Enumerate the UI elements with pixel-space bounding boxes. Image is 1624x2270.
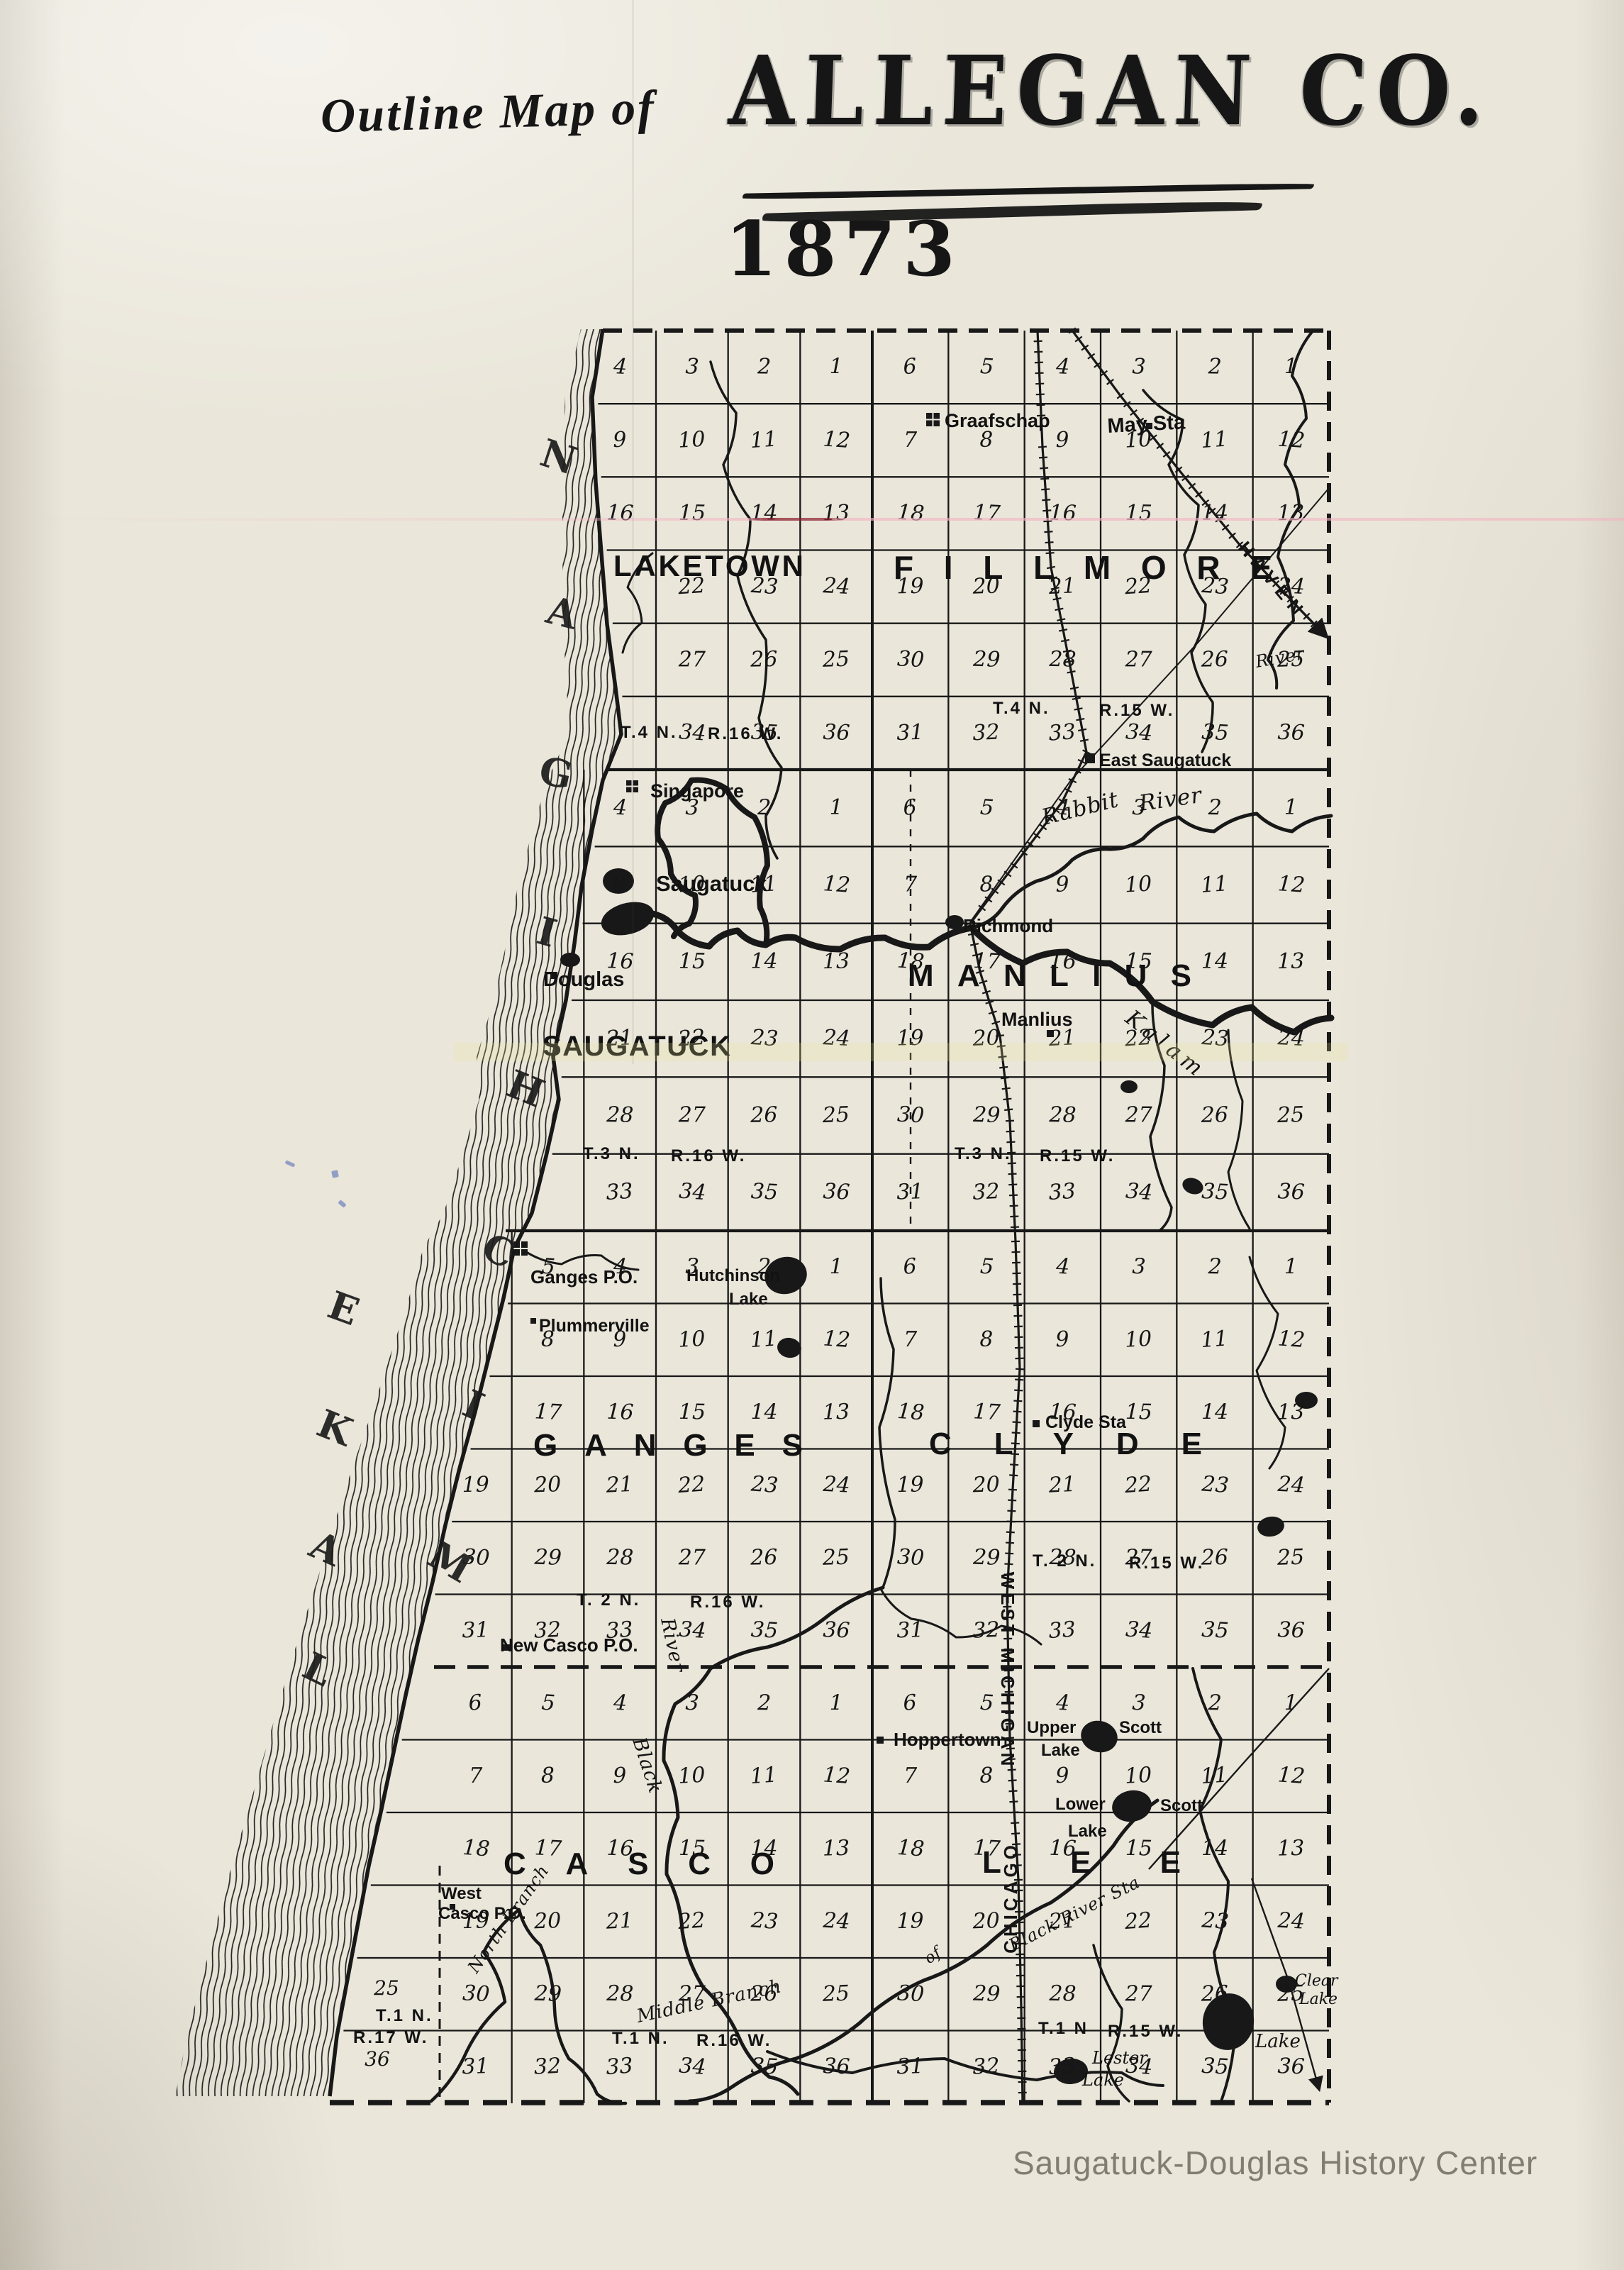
- chicago-west-michigan-railroad-tie: [1008, 1174, 1017, 1175]
- township-range-label: R.16 W.: [696, 2031, 772, 2050]
- section-number: 29: [533, 1545, 562, 1571]
- section-number: 6: [902, 1690, 917, 1716]
- place-label-lester-lake-2: Lake: [1081, 2070, 1124, 2090]
- section-number: 10: [677, 1763, 706, 1789]
- section-number: 17: [973, 1399, 1002, 1425]
- section-number: 11: [750, 1762, 779, 1789]
- section-number: 10: [1124, 1327, 1152, 1353]
- section-number: 26: [1200, 647, 1228, 672]
- section-number: 6: [902, 1254, 917, 1280]
- rabbit-river: [973, 814, 1331, 927]
- section-number: 33: [1047, 719, 1077, 746]
- chicago-west-michigan-railroad-tie: [1001, 1078, 1009, 1078]
- section-number: 35: [750, 2054, 779, 2080]
- section-number: 13: [823, 1400, 850, 1425]
- section-number: 7: [469, 1764, 483, 1788]
- watermark-credit: Saugatuck-Douglas History Center: [1013, 2144, 1537, 2182]
- section-number: 4: [612, 795, 628, 821]
- section-number: 34: [1125, 719, 1154, 746]
- chicago-west-michigan-railroad-tie: [1009, 1791, 1018, 1792]
- section-number: 11: [1200, 1326, 1229, 1353]
- section-number: 28: [606, 1545, 634, 1571]
- section-number: 31: [896, 720, 924, 746]
- section-number: 35: [750, 1617, 779, 1644]
- chicago-west-michigan-railroad-tie: [1045, 542, 1054, 543]
- chicago-west-michigan-railroad-tie: [1008, 1770, 1016, 1771]
- place-label-east-saugatuck: East Saugatuck: [1099, 751, 1231, 770]
- place-label-clear-lake-1: Clear: [1295, 1972, 1339, 1990]
- section-number: 23: [750, 1908, 779, 1934]
- township-range-label: R.15 W.: [1040, 1146, 1115, 1166]
- section-number: 27: [678, 647, 706, 672]
- section-number: 1: [1284, 795, 1298, 820]
- section-number: 20: [533, 1472, 561, 1497]
- township-range-label: T.1 N.: [376, 2006, 433, 2025]
- chicago-west-michigan-railroad-tie: [1008, 1500, 1016, 1501]
- section-number: 23: [1200, 573, 1230, 600]
- county-map: LAKETOWNFILLMORESAUGATUCKMANLIUSGANGESCL…: [128, 319, 1340, 2114]
- chicago-west-michigan-railroad-tie: [1008, 1781, 1017, 1781]
- chicago-west-michigan-railroad-tie: [1038, 447, 1047, 448]
- section-number: 20: [972, 1908, 1000, 1934]
- chicago-west-michigan-railroad-tie: [1061, 640, 1069, 641]
- township-name-ganges: GANGES: [533, 1428, 803, 1463]
- section-number: 22: [677, 1908, 706, 1934]
- chicago-west-michigan-railroad-tie: [1011, 1227, 1019, 1228]
- section-number: 15: [679, 501, 706, 526]
- chicago-west-michigan-railroad-tie: [1009, 1475, 1018, 1475]
- chicago-west-michigan-railroad-tie: [1015, 1380, 1023, 1380]
- chicago-west-michigan-railroad-tie: [1013, 1401, 1022, 1402]
- section-number: 27: [1125, 1103, 1153, 1128]
- section-number: 14: [750, 1836, 777, 1861]
- section-number: 7: [903, 428, 918, 453]
- hutchinson-lake-south: [776, 1336, 803, 1359]
- chicago-west-michigan-railroad-tie: [1016, 1369, 1024, 1370]
- section-number: 13: [823, 949, 850, 975]
- section-number: 35: [1201, 719, 1230, 746]
- section-number: 30: [896, 1544, 925, 1571]
- section-number: 35: [750, 1179, 779, 1205]
- section-number: 3: [1132, 354, 1146, 380]
- section-number: 11: [1200, 871, 1229, 898]
- section-number: 23: [750, 1025, 779, 1052]
- section-number: 2: [757, 354, 772, 379]
- section-number: 28: [1048, 1102, 1077, 1128]
- water-label-rabbit-river: River: [1137, 782, 1204, 816]
- section-number: 20: [972, 1472, 1000, 1497]
- section-number: 4: [1055, 1690, 1070, 1716]
- section-number: 35: [750, 719, 779, 746]
- small-lake: [1120, 1080, 1138, 1093]
- section-number: 9: [613, 427, 627, 453]
- rail-label-chicago-rr-label: CHICAGO: [1000, 1842, 1021, 1954]
- place-label-clear-lake-2: Lake: [1298, 1991, 1337, 2008]
- douglas-village-blob: [560, 953, 580, 967]
- north-branch-black-river: [431, 1910, 625, 2103]
- chicago-west-michigan-railroad-tie: [1014, 1390, 1023, 1391]
- section-number: 14: [1201, 1836, 1228, 1861]
- section-number: 2: [1207, 795, 1222, 820]
- section-number: 14: [1201, 501, 1228, 526]
- chicago-west-michigan-railroad-tie: [1011, 1833, 1020, 1834]
- section-number: 25: [1276, 1545, 1304, 1571]
- section-number: 1: [830, 795, 843, 820]
- scanned-map-page: { "title": { "prefix": "Outline Map of",…: [0, 0, 1624, 2270]
- section-number: 29: [972, 647, 1001, 672]
- chicago-west-michigan-railroad-tie: [1013, 1412, 1021, 1412]
- section-number: 30: [896, 1102, 925, 1129]
- section-number: 4: [612, 1690, 628, 1716]
- section-number: 11: [1200, 426, 1229, 453]
- chicago-west-michigan-railroad-tie: [1012, 1432, 1020, 1433]
- chicago-west-michigan-railroad-tie: [1002, 1088, 1011, 1089]
- section-number: 36: [365, 2047, 390, 2071]
- section-number: 10: [677, 1327, 706, 1353]
- section-number: 36: [1277, 1179, 1305, 1205]
- title-year: 1873: [725, 204, 962, 293]
- section-number: 32: [533, 2054, 562, 2080]
- place-label-graafschap: Graafschap: [945, 410, 1050, 431]
- section-number: 27: [1125, 647, 1153, 672]
- section-number: 23: [1200, 1908, 1230, 1934]
- chicago-west-michigan-railroad-tie: [1006, 1121, 1014, 1122]
- water-label-casco-black-word: Black: [628, 1734, 667, 1797]
- township-range-label: T.4 N.: [621, 723, 678, 742]
- section-number: 24: [822, 1472, 851, 1498]
- chicago-west-michigan-railroad-tie: [970, 943, 979, 945]
- section-number: 13: [1277, 501, 1305, 526]
- place-label-upper-scott-3: Lake: [1041, 1741, 1080, 1760]
- chicago-west-michigan-railroad-tie: [1006, 1532, 1015, 1533]
- section-number: 18: [896, 1399, 925, 1426]
- section-number: 32: [972, 2054, 1001, 2080]
- section-number: 8: [540, 1764, 555, 1788]
- chicago-west-michigan-railroad-tie: [1035, 384, 1044, 384]
- chicago-west-michigan-railroad-tie: [1005, 1554, 1013, 1554]
- section-number: 27: [1125, 1981, 1153, 2006]
- section-number: 33: [1047, 1179, 1077, 1206]
- section-number: 7: [903, 1764, 918, 1788]
- section-number: 31: [462, 1617, 489, 1643]
- section-number: 33: [605, 1179, 634, 1206]
- chicago-west-michigan-railroad-tie: [1059, 629, 1067, 631]
- section-number: 20: [972, 573, 1000, 599]
- township-range-label: T.4 N.: [993, 699, 1050, 718]
- township-range-label: R.16 W.: [690, 1593, 765, 1612]
- section-number: 25: [373, 1976, 399, 2000]
- chicago-west-michigan-railroad-tie: [1009, 1195, 1018, 1196]
- place-label-west-casco-1: West: [441, 1884, 482, 1903]
- chicago-west-michigan-railroad-tie: [1044, 531, 1052, 532]
- section-number: 34: [678, 719, 707, 746]
- clyde-stream: [879, 1278, 895, 1588]
- section-number: 28: [606, 1981, 634, 2007]
- section-number: 27: [678, 1545, 706, 1570]
- section-number: 19: [462, 1472, 489, 1497]
- section-number: 15: [1125, 1836, 1152, 1861]
- section-number: 24: [1277, 1025, 1306, 1051]
- section-number: 6: [902, 354, 917, 380]
- section-number: 13: [1277, 949, 1305, 975]
- section-number: 18: [896, 500, 925, 527]
- section-number: 2: [1207, 354, 1222, 379]
- plummerville-marker: [530, 1318, 536, 1324]
- section-number: 2: [757, 1690, 772, 1715]
- section-number: 18: [896, 1835, 925, 1862]
- section-number: 15: [679, 949, 706, 975]
- section-number: 28: [606, 1102, 634, 1128]
- section-number: 21: [605, 1025, 634, 1051]
- chicago-west-michigan-railroad-tie: [1057, 619, 1065, 620]
- chicago-west-michigan-railroad-tie: [1010, 1464, 1018, 1465]
- place-label-ganges-po: Ganges P.O.: [530, 1266, 638, 1288]
- clyde-ne-stream: [1250, 1257, 1285, 1468]
- section-number: 3: [1132, 1254, 1146, 1280]
- section-number: 36: [823, 720, 850, 746]
- section-number: 29: [533, 1981, 562, 2007]
- chicago-west-michigan-railroad-tie: [1006, 1543, 1014, 1544]
- section-number: 14: [750, 949, 777, 974]
- section-number: 35: [1201, 2054, 1230, 2080]
- section-number: 10: [677, 427, 706, 453]
- township-range-label: R.16 W.: [671, 1146, 746, 1166]
- chicago-west-michigan-railroad-tie: [1041, 489, 1050, 489]
- section-number: 8: [979, 1764, 994, 1788]
- section-number: 25: [1276, 1102, 1304, 1128]
- section-number: 11: [750, 1326, 779, 1353]
- clyde-sta-marker: [1033, 1420, 1040, 1427]
- chicago-west-michigan-railroad-tie: [999, 1067, 1008, 1068]
- section-number: 15: [679, 1400, 706, 1425]
- chicago-west-michigan-railroad-tie: [1074, 708, 1083, 709]
- section-number: 24: [822, 1025, 851, 1051]
- chicago-west-michigan-railroad-tie: [1010, 1206, 1018, 1207]
- township-range-label: R.15 W.: [1099, 701, 1174, 720]
- section-number: 9: [1055, 427, 1069, 453]
- section-number: 19: [896, 1026, 924, 1051]
- section-number: 23: [1200, 1471, 1230, 1498]
- section-number: 15: [1125, 949, 1152, 975]
- section-number: 22: [677, 1025, 706, 1052]
- section-number: 5: [979, 1254, 994, 1280]
- place-label-saugatuck-village: Saugatuck: [656, 871, 768, 896]
- section-number: 5: [979, 354, 994, 380]
- section-number: 23: [750, 1471, 779, 1498]
- upper-scott-lake: [1077, 1717, 1121, 1756]
- township-range-label: R.15 W.: [1108, 2022, 1183, 2041]
- section-number: 7: [903, 1327, 918, 1352]
- section-number: 32: [972, 1617, 1001, 1644]
- section-number: 26: [750, 647, 778, 672]
- section-number: 27: [1125, 1545, 1153, 1570]
- section-number: 12: [1277, 871, 1306, 898]
- section-number: 21: [605, 1472, 634, 1498]
- place-label-new-casco-po: New Casco P.O.: [500, 1634, 638, 1656]
- section-number: 17: [973, 1835, 1002, 1861]
- section-number: 14: [750, 501, 777, 526]
- section-number: 34: [1125, 1617, 1154, 1644]
- section-number: 12: [823, 426, 852, 453]
- section-number: 34: [678, 2053, 707, 2080]
- section-number: 34: [678, 1179, 707, 1206]
- section-number: 26: [750, 1545, 778, 1571]
- chicago-west-michigan-railroad-tie: [1008, 1185, 1017, 1185]
- section-number: 13: [823, 1836, 850, 1861]
- section-number: 22: [1123, 1908, 1153, 1934]
- section-number: 18: [896, 948, 925, 975]
- section-number: 9: [613, 872, 627, 897]
- chicago-west-michigan-railroad-tie: [1006, 1131, 1015, 1132]
- chicago-west-michigan-railroad-tie: [1010, 1812, 1018, 1812]
- chicago-west-michigan-railroad-tie: [1035, 362, 1043, 363]
- place-label-lower-scott-3: Lake: [1068, 1822, 1107, 1841]
- section-number: 25: [821, 1981, 850, 2007]
- section-number: 31: [896, 1617, 924, 1643]
- section-number: 3: [1132, 1690, 1146, 1716]
- section-number: 24: [1277, 1908, 1306, 1934]
- section-number: 25: [821, 1545, 850, 1571]
- richmond-marker: [945, 915, 964, 929]
- chicago-west-michigan-railroad-tie: [1034, 352, 1042, 353]
- place-label-lower-scott-2: Scott: [1160, 1796, 1203, 1815]
- section-number: 6: [902, 795, 917, 821]
- section-number: 24: [822, 573, 851, 599]
- section-number: 32: [972, 719, 1001, 746]
- section-number: 9: [1055, 1763, 1069, 1788]
- section-number: 14: [750, 1400, 777, 1424]
- chicago-west-michigan-railroad-tie: [1039, 458, 1047, 458]
- section-number: 22: [677, 573, 706, 600]
- title-county: ALLEGAN CO.: [727, 35, 1496, 148]
- section-number: 36: [823, 1179, 850, 1205]
- title-prefix: Outline Map of: [320, 79, 657, 144]
- water-label-rabbit: Rabbit: [1038, 787, 1121, 831]
- chicago-west-michigan-railroad-tie: [1007, 1511, 1016, 1512]
- chicago-west-michigan-railroad-tie: [1070, 687, 1079, 689]
- section-number: 24: [822, 1908, 851, 1934]
- section-number: 3: [685, 354, 699, 380]
- chicago-west-michigan-railroad-tie: [1010, 1217, 1018, 1217]
- section-number: 18: [462, 1835, 491, 1862]
- chicago-west-michigan-railroad-tie: [1080, 740, 1089, 741]
- section-number: 17: [973, 948, 1002, 975]
- section-number: 11: [750, 426, 779, 453]
- section-number: 30: [896, 1981, 925, 2007]
- section-number: 2: [1207, 1254, 1222, 1279]
- township-range-label: T.3 N.: [583, 1144, 640, 1163]
- place-label-lower-scott-1: Lower: [1055, 1795, 1106, 1814]
- place-label-may-sta: May Sta: [1107, 411, 1186, 438]
- lower-scott-lake: [1110, 1787, 1155, 1825]
- section-number: 17: [534, 1399, 563, 1425]
- section-number: 32: [972, 1179, 1001, 1205]
- section-number: 21: [605, 1908, 634, 1934]
- section-number: 12: [823, 871, 852, 898]
- township-range-label: T.3 N.: [955, 1144, 1012, 1163]
- chicago-west-michigan-railroad-tie: [1055, 609, 1064, 610]
- section-number: 4: [1055, 354, 1070, 380]
- section-number: 16: [1049, 948, 1077, 974]
- section-number: 16: [606, 1400, 634, 1425]
- chicago-west-michigan-railroad-tie: [1035, 373, 1044, 374]
- section-number: 36: [1277, 720, 1305, 746]
- section-number: 34: [1125, 1179, 1154, 1206]
- hoppertown-marker: [877, 1737, 884, 1744]
- section-number: 17: [973, 500, 1002, 526]
- place-label-douglas: Douglas: [543, 968, 624, 991]
- chicago-west-michigan-railroad-tie: [1036, 405, 1045, 406]
- kalamazoo-oxbow: [657, 780, 767, 945]
- place-label-richmond: Richmond: [963, 915, 1053, 936]
- section-number: 16: [606, 1836, 634, 1861]
- place-label-upper-scott-1: Upper: [1027, 1718, 1076, 1737]
- water-label-of-word: of: [921, 1942, 947, 1968]
- place-label-hutchinson-lake-word: Lake: [729, 1290, 768, 1309]
- kalamazoo-lake: [598, 897, 658, 941]
- section-number: 33: [1047, 2053, 1077, 2080]
- section-number: 6: [467, 1690, 482, 1716]
- manlius-stream-2: [1228, 1030, 1250, 1229]
- section-number: 25: [821, 647, 850, 672]
- section-number: 11: [1200, 1762, 1229, 1789]
- section-number: 12: [1277, 1762, 1306, 1789]
- section-number: 1: [1284, 1254, 1298, 1279]
- place-label-lester-lake-1: Lester: [1091, 2048, 1148, 2068]
- section-number: 7: [903, 873, 918, 897]
- chicago-west-michigan-railroad-tie: [1011, 1443, 1020, 1444]
- east-saugatuck-marker: [1085, 753, 1095, 763]
- place-label-manlius-village: Manlius: [1001, 1009, 1073, 1030]
- section-number: 12: [1277, 1326, 1306, 1353]
- section-number: 23: [1200, 1025, 1230, 1052]
- chicago-west-michigan-railroad-tie: [1040, 468, 1048, 469]
- section-number: 8: [979, 1327, 994, 1352]
- section-number: 29: [972, 1981, 1001, 2007]
- section-number: 17: [534, 1835, 563, 1861]
- chicago-west-michigan-railroad-tie: [1034, 341, 1042, 342]
- section-number: 31: [896, 2054, 924, 2079]
- section-number: 19: [896, 574, 924, 599]
- section-number: 22: [1123, 573, 1153, 600]
- section-number: 5: [979, 1690, 994, 1716]
- section-number: 1: [830, 1690, 843, 1715]
- chicago-west-michigan-railroad-tie: [1072, 698, 1081, 699]
- chicago-west-michigan-railroad-tie: [1006, 1142, 1015, 1143]
- section-number: 15: [1125, 501, 1152, 526]
- lake-michigan-letter: E: [322, 1282, 365, 1334]
- section-number: 30: [896, 646, 925, 672]
- chicago-west-michigan-railroad-tie: [1033, 331, 1042, 331]
- section-number: 30: [462, 1981, 490, 2007]
- section-number: 23: [750, 573, 779, 600]
- chicago-west-michigan-railroad-tie: [1040, 478, 1049, 479]
- section-number: 36: [1277, 1617, 1305, 1643]
- section-number: 35: [1201, 1617, 1230, 1644]
- section-number: 27: [678, 1103, 706, 1128]
- section-number: 19: [896, 1472, 924, 1497]
- chicago-west-michigan-railroad-tie: [1009, 1801, 1018, 1802]
- section-number: 5: [540, 1690, 555, 1716]
- section-number: 4: [612, 354, 628, 380]
- chicago-west-michigan-railroad-tie: [1076, 719, 1084, 720]
- section-number: 1: [830, 1254, 843, 1279]
- section-number: 16: [606, 500, 634, 526]
- section-number: 20: [533, 1908, 561, 1934]
- section-number: 21: [1047, 1472, 1077, 1498]
- chicago-west-michigan-railroad-tie: [1013, 1422, 1021, 1423]
- section-number: 33: [605, 2053, 634, 2080]
